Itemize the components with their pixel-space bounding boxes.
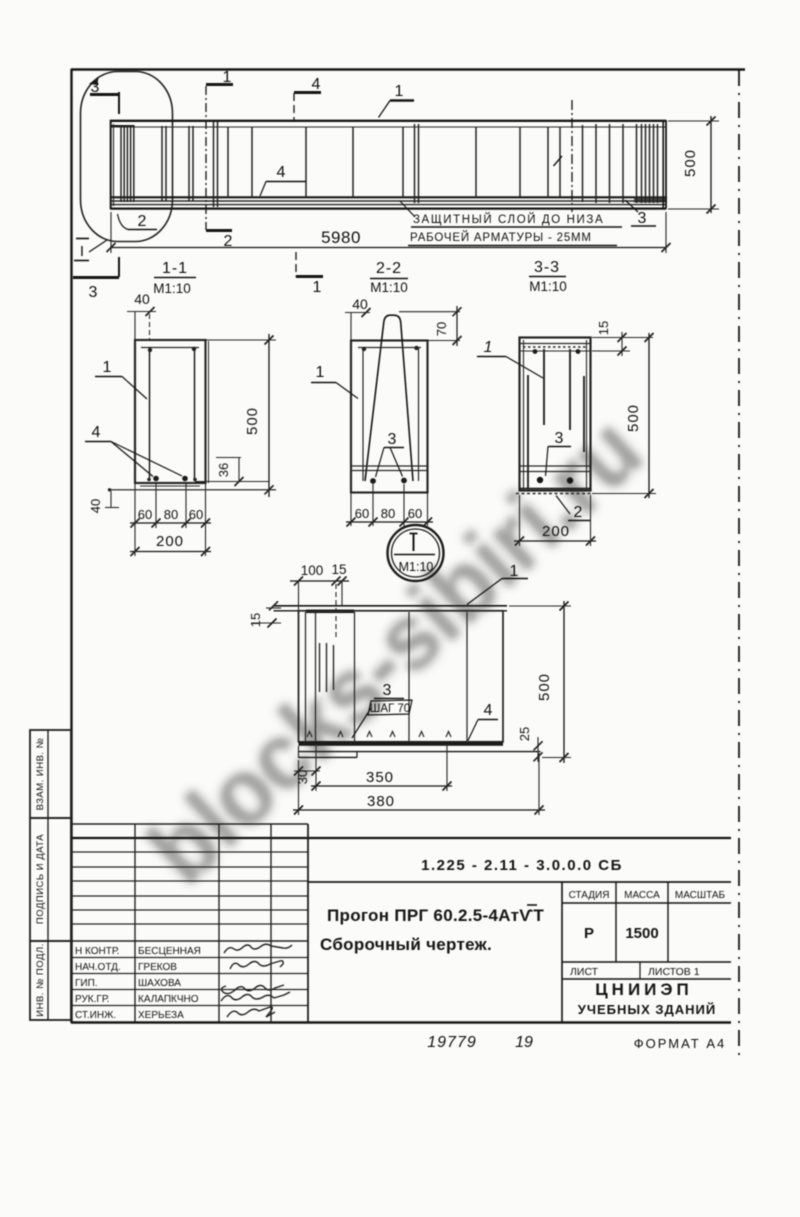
svg-text:МАССА: МАССА	[624, 890, 660, 901]
svg-text:3: 3	[555, 430, 564, 447]
svg-text:4: 4	[277, 164, 286, 181]
svg-text:КАЛАПКЧНО: КАЛАПКЧНО	[138, 994, 199, 1005]
svg-text:1: 1	[395, 83, 404, 100]
svg-text:РУК.ГР.: РУК.ГР.	[75, 994, 109, 1005]
svg-text:25: 25	[517, 727, 532, 741]
svg-text:100: 100	[301, 563, 324, 578]
svg-text:ЛИСТ: ЛИСТ	[570, 966, 599, 978]
svg-text:4: 4	[484, 702, 493, 719]
svg-text:1: 1	[484, 339, 493, 356]
svg-text:380: 380	[367, 793, 395, 810]
svg-text:1.225 - 2.11 - 3.0.0.0 СБ: 1.225 - 2.11 - 3.0.0.0 СБ	[421, 857, 623, 874]
svg-text:ГИП.: ГИП.	[75, 978, 98, 989]
svg-text:1500: 1500	[625, 925, 658, 942]
svg-text:ЛИСТОВ 1: ЛИСТОВ 1	[648, 966, 700, 978]
svg-text:15: 15	[248, 613, 263, 627]
svg-text:ВЗАМ. ИНВ. №: ВЗАМ. ИНВ. №	[35, 738, 46, 811]
svg-text:Прогон ПРГ 60.2.5-4АтѴТ: Прогон ПРГ 60.2.5-4АтѴТ	[327, 906, 544, 925]
svg-text:3-3: 3-3	[534, 259, 560, 276]
svg-text:2: 2	[138, 213, 147, 230]
svg-text:ГРЕКОВ: ГРЕКОВ	[138, 962, 177, 973]
svg-text:М1:10: М1:10	[529, 279, 567, 294]
svg-text:2: 2	[574, 504, 583, 521]
svg-text:3: 3	[638, 210, 647, 227]
svg-text:М1:10: М1:10	[153, 281, 191, 296]
svg-text:500: 500	[682, 149, 699, 177]
svg-text:ИНВ. № ПОДЛ.: ИНВ. № ПОДЛ.	[35, 943, 46, 1016]
svg-text:1: 1	[223, 69, 232, 86]
svg-text:30: 30	[295, 770, 310, 784]
svg-text:80: 80	[381, 506, 395, 521]
svg-text:ЦНИИЭП: ЦНИИЭП	[595, 980, 692, 999]
svg-text:РАБОЧЕЙ АРМАТУРЫ - 25ММ: РАБОЧЕЙ АРМАТУРЫ - 25ММ	[410, 231, 592, 244]
svg-text:Сборочный чертеж.: Сборочный чертеж.	[320, 935, 492, 954]
svg-text:5980: 5980	[321, 228, 361, 247]
svg-text:Р: Р	[584, 925, 594, 942]
svg-text:4: 4	[312, 76, 321, 93]
svg-text:500: 500	[536, 673, 553, 701]
svg-text:36: 36	[216, 463, 231, 477]
svg-text:ФОРМАТ А4: ФОРМАТ А4	[634, 1036, 726, 1051]
svg-text:200: 200	[542, 523, 570, 540]
svg-text:70: 70	[434, 322, 449, 336]
svg-text:4: 4	[92, 424, 101, 441]
svg-text:СТ.ИНЖ.: СТ.ИНЖ.	[75, 1010, 116, 1021]
svg-text:500: 500	[244, 407, 261, 435]
svg-text:1: 1	[510, 563, 519, 580]
svg-text:ШАГ 70: ШАГ 70	[370, 703, 410, 715]
svg-text:1: 1	[313, 279, 322, 296]
svg-text:1-1: 1-1	[162, 260, 188, 277]
svg-text:19: 19	[515, 1034, 533, 1051]
svg-text:3: 3	[383, 682, 392, 699]
svg-text:350: 350	[366, 769, 394, 786]
svg-text:60: 60	[408, 506, 422, 521]
svg-text:УЧЕБНЫХ ЗДАНИЙ: УЧЕБНЫХ ЗДАНИЙ	[578, 1002, 717, 1017]
svg-text:М1:10: М1:10	[399, 560, 434, 574]
svg-text:60: 60	[138, 507, 152, 522]
svg-text:БЕСЦЕННАЯ: БЕСЦЕННАЯ	[138, 946, 201, 957]
svg-text:19779: 19779	[427, 1034, 477, 1051]
svg-text:40: 40	[134, 291, 150, 307]
svg-text:Н КОНТР.: Н КОНТР.	[75, 946, 119, 957]
svg-text:40: 40	[88, 499, 103, 513]
svg-text:3: 3	[388, 431, 397, 448]
svg-text:200: 200	[156, 533, 184, 550]
svg-text:60: 60	[355, 506, 369, 521]
svg-text:НАЧ.ОТД.: НАЧ.ОТД.	[75, 962, 121, 973]
svg-text:ХЕРЬЕЗА: ХЕРЬЕЗА	[138, 1010, 184, 1021]
svg-text:15: 15	[331, 562, 346, 577]
svg-text:3: 3	[89, 284, 98, 301]
svg-text:2-2: 2-2	[376, 260, 402, 277]
svg-text:15: 15	[596, 321, 611, 335]
svg-text:80: 80	[164, 507, 178, 522]
svg-text:60: 60	[189, 507, 203, 522]
svg-text:СТАДИЯ: СТАДИЯ	[569, 890, 610, 901]
svg-text:ПОДПИСЬ И ДАТА: ПОДПИСЬ И ДАТА	[35, 834, 46, 924]
svg-text:1: 1	[316, 364, 325, 381]
svg-text:I: I	[80, 243, 84, 260]
svg-text:ЗАЩИТНЫЙ СЛОЙ ДО НИЗА: ЗАЩИТНЫЙ СЛОЙ ДО НИЗА	[413, 213, 604, 226]
svg-text:ШАХОВА: ШАХОВА	[138, 978, 181, 989]
svg-text:500: 500	[625, 404, 642, 432]
svg-text:1: 1	[103, 359, 112, 376]
svg-text:МАСШТАБ: МАСШТАБ	[675, 890, 726, 901]
svg-text:М1:10: М1:10	[370, 280, 408, 295]
svg-text:40: 40	[352, 296, 368, 312]
